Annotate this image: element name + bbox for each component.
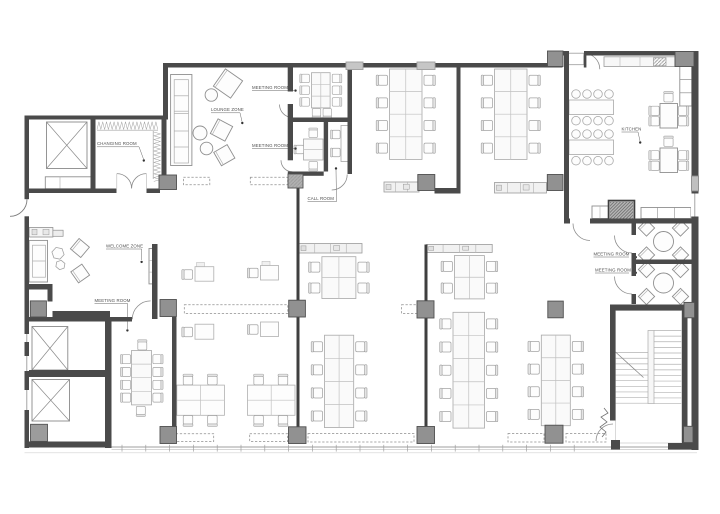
- svg-text:CALL ROOM: CALL ROOM: [308, 196, 335, 201]
- svg-text:MEETING ROOM: MEETING ROOM: [95, 298, 131, 303]
- svg-text:MEETING ROOM: MEETING ROOM: [252, 143, 288, 148]
- svg-text:WELCOME ZONE: WELCOME ZONE: [106, 244, 143, 249]
- svg-text:LOUNGE ZONE: LOUNGE ZONE: [211, 107, 244, 112]
- svg-text:CHANGING ROOM: CHANGING ROOM: [97, 141, 137, 146]
- svg-text:MEETING ROOM: MEETING ROOM: [595, 268, 631, 273]
- svg-text:MEETING ROOM: MEETING ROOM: [252, 85, 288, 90]
- svg-text:KITCHEN: KITCHEN: [622, 127, 642, 132]
- svg-text:MEETING ROOM: MEETING ROOM: [594, 252, 630, 257]
